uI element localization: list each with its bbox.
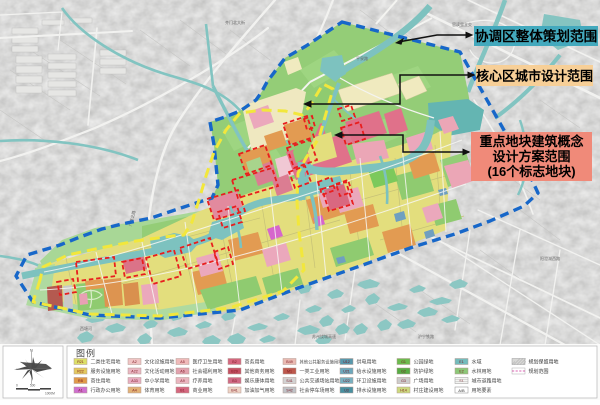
svg-text:0: 0 [16,384,18,388]
svg-text:社会福利用地: 社会福利用地 [193,368,223,375]
svg-text:U21: U21 [343,370,350,374]
svg-text:N: N [30,348,33,353]
svg-text:B29: B29 [231,370,237,374]
svg-text:A22: A22 [131,370,137,374]
svg-text:B2: B2 [232,360,236,364]
svg-text:A33: A33 [131,379,137,383]
svg-text:核心区城市设计范围: 核心区城市设计范围 [476,69,593,84]
svg-text:沪宁铁路: 沪宁铁路 [418,333,434,339]
svg-text:商住用地: 商住用地 [91,378,111,385]
svg-text:公园绿地: 公园绿地 [414,359,434,366]
svg-text:RB: RB [78,379,84,383]
svg-text:协调区整体策划范围: 协调区整体策划范围 [475,28,597,44]
svg-text:齐门北大街: 齐门北大街 [225,19,245,25]
svg-text:设计方案范围: 设计方案范围 [492,149,570,164]
svg-text:(16个标志地块): (16个标志地块) [487,164,575,179]
svg-text:广场用地: 广场用地 [414,378,434,385]
svg-text:水林用地: 水林用地 [472,368,492,375]
svg-text:H14: H14 [400,389,407,393]
svg-text:A4: A4 [132,389,136,393]
svg-text:医疗卫生用地: 医疗卫生用地 [193,359,223,366]
svg-text:娱乐康体用地: 娱乐康体用地 [245,378,275,385]
svg-text:水域: 水域 [472,359,482,366]
svg-text:中小学用地: 中小学用地 [145,378,170,385]
svg-text:U3: U3 [344,389,349,393]
svg-text:平泉路: 平泉路 [356,55,368,61]
svg-text:规划保留用地: 规划保留用地 [529,359,559,366]
svg-text:重点地块建筑概念: 重点地块建筑概念 [479,134,583,149]
svg-text:E1: E1 [459,360,463,364]
svg-text:U12: U12 [343,360,350,364]
svg-text:A5: A5 [180,360,184,364]
svg-text:A/B: A/B [458,388,465,393]
svg-text:社会停车场用地: 社会停车场用地 [300,387,335,394]
svg-text:规划范围: 规划范围 [529,368,549,375]
svg-text:B41: B41 [231,389,237,393]
svg-text:文化设施用地: 文化设施用地 [145,359,175,366]
svg-text:村庄建设用地: 村庄建设用地 [414,387,444,394]
svg-text:用地要素: 用地要素 [472,387,492,394]
svg-text:二类住宅用地: 二类住宅用地 [91,359,121,366]
svg-text:官渎里立交: 官渎里立交 [452,21,472,27]
svg-text:公共交通场站用地: 公共交通场站用地 [300,378,340,385]
svg-text:G1: G1 [401,360,406,364]
svg-text:E2: E2 [459,370,463,374]
svg-text:排水设施用地: 排水设施用地 [357,387,387,394]
svg-text:苏州绕城高速: 苏州绕城高速 [312,333,336,339]
svg-text:文化活动用地: 文化活动用地 [145,368,175,375]
svg-text:加油加气用地: 加油加气用地 [245,387,275,394]
svg-text:U22: U22 [343,379,350,383]
svg-text:商业用地: 商业用地 [193,387,213,394]
svg-text:服务设施用地: 服务设施用地 [91,368,121,375]
svg-text:500: 500 [30,384,36,388]
svg-text:R22: R22 [77,370,84,374]
svg-text:城市道路用地: 城市道路用地 [472,378,502,385]
svg-text:西塘河: 西塘河 [80,325,92,331]
svg-text:A2: A2 [132,360,136,364]
svg-text:B3: B3 [232,379,236,383]
svg-text:1000M: 1000M [45,392,55,396]
svg-text:给水设施用地: 给水设施用地 [357,368,387,375]
svg-text:B49: B49 [286,360,292,364]
svg-text:体育用地: 体育用地 [145,387,165,394]
svg-text:G2: G2 [401,370,406,374]
svg-text:S41: S41 [286,379,292,383]
svg-text:A6: A6 [180,370,184,374]
svg-text:环卫设施用地: 环卫设施用地 [357,378,387,385]
svg-text:其他公共服务设施用地: 其他公共服务设施用地 [300,359,344,366]
svg-text:防护绿地: 防护绿地 [414,368,434,375]
svg-text:R21: R21 [77,360,84,364]
svg-text:图例: 图例 [76,348,96,359]
svg-text:行政办公用地: 行政办公用地 [91,387,121,394]
svg-text:疗养用地: 疗养用地 [193,378,213,385]
svg-text:G3: G3 [401,379,406,383]
svg-text:A9: A9 [180,379,184,383]
svg-text:阳澄湖西路: 阳澄湖西路 [540,255,560,261]
svg-text:一类工业用地: 一类工业用地 [300,368,330,375]
svg-text:供电用地: 供电用地 [357,359,377,366]
svg-text:其他商务用地: 其他商务用地 [245,368,275,375]
svg-text:M1: M1 [287,370,292,374]
svg-text:B1: B1 [180,389,184,393]
svg-text:商务用地: 商务用地 [245,359,265,366]
svg-text:A1: A1 [78,389,82,393]
svg-text:S42: S42 [286,389,292,393]
